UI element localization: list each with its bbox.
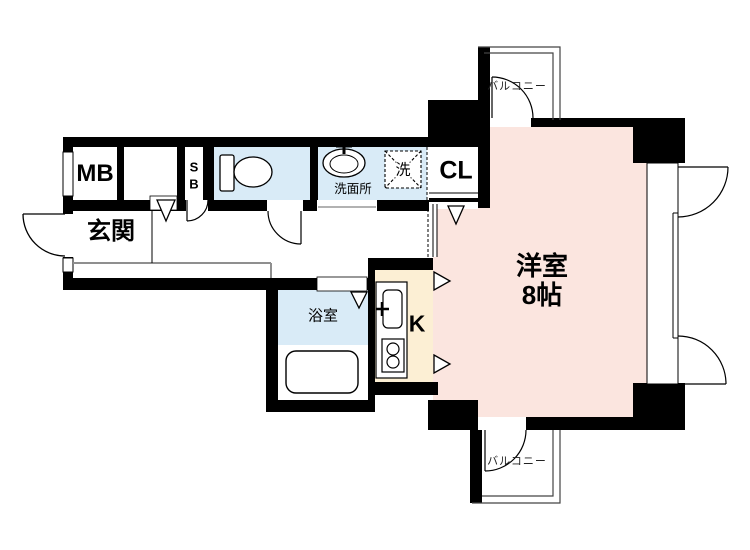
- bathroom-label: 浴室: [308, 309, 338, 324]
- closet-label: CL: [439, 159, 472, 184]
- wall: [266, 400, 375, 412]
- shoe-box-label: B: [189, 178, 198, 191]
- wall: [266, 278, 278, 412]
- wall: [177, 147, 185, 200]
- laundry-label: 洗: [394, 163, 411, 178]
- right-window-door-bottom-arc: [678, 336, 726, 384]
- south-balcony-label: バルコニー: [487, 457, 547, 468]
- wall: [63, 137, 73, 290]
- bathtub-area-floor: [278, 345, 368, 400]
- wall: [63, 137, 428, 147]
- meter-box-label: MB: [76, 162, 113, 186]
- wall: [63, 200, 429, 211]
- floor-plan: MB S B 玄関 洗面所 洗 CL 浴室 K 洋室 8帖 バルコニー バルコニ…: [0, 0, 750, 550]
- wall: [272, 278, 368, 290]
- washroom-label: 洗面所: [334, 183, 372, 196]
- wall: [531, 118, 633, 127]
- storage-floor: [124, 147, 177, 200]
- wall: [117, 147, 124, 200]
- main-room-label: 洋室: [516, 253, 568, 279]
- wall: [203, 147, 214, 200]
- entrance-label: 玄関: [87, 220, 135, 244]
- main-room-size-label: 8帖: [522, 282, 562, 308]
- wall: [310, 147, 318, 200]
- wall-pillar: [633, 383, 685, 430]
- north-balcony-label: バルコニー: [487, 82, 547, 93]
- wall-pillar: [428, 400, 478, 430]
- wall: [526, 417, 633, 430]
- wall: [470, 430, 482, 503]
- right-window-door-top-arc: [678, 167, 728, 217]
- wall: [478, 47, 490, 208]
- toilet-floor: [214, 147, 310, 200]
- wall: [63, 278, 280, 290]
- kitchen-label: K: [409, 313, 426, 336]
- wall: [368, 382, 438, 395]
- entrance-door-arc: [23, 214, 65, 256]
- window-strip: [647, 163, 678, 384]
- wall-pillar: [633, 118, 685, 163]
- shoe-box-label: S: [190, 161, 199, 174]
- wall: [368, 258, 433, 270]
